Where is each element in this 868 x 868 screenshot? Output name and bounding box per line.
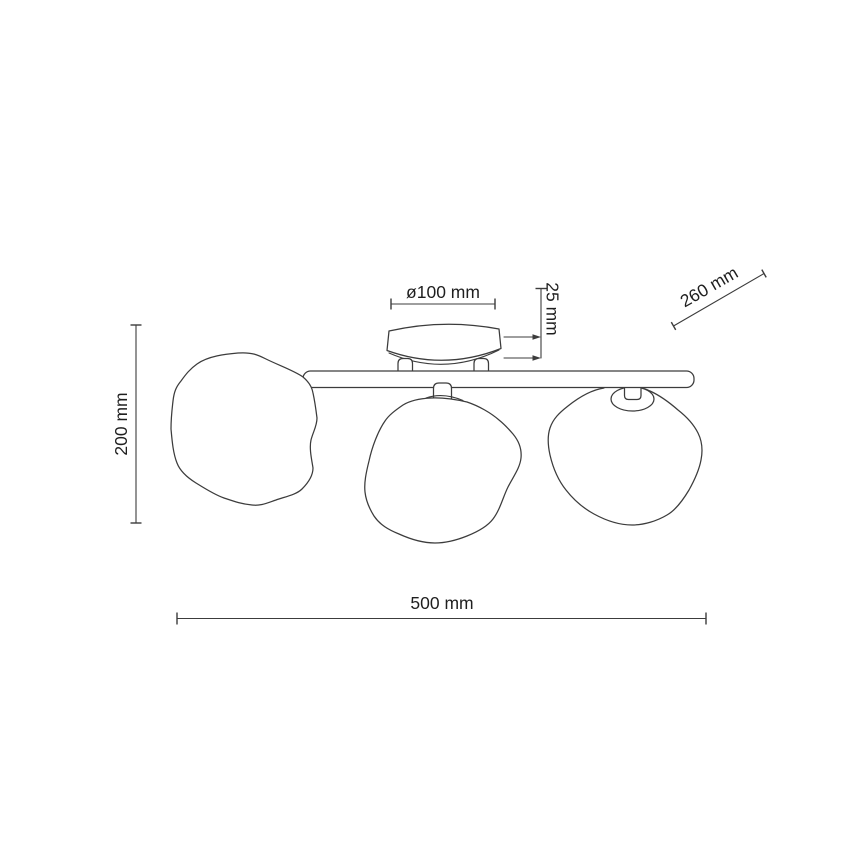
dimension-label-canopy-diameter: ø100 mm [406, 282, 480, 302]
dimension-end-tick [671, 322, 675, 330]
arrowhead-icon [533, 334, 542, 340]
ceiling-canopy [387, 324, 501, 372]
arrowhead-icon [533, 355, 542, 361]
canopy-body [387, 324, 501, 360]
dimension-canopy-height: 25 mm [504, 282, 563, 361]
dimension-label-total-height: 200 mm [111, 392, 131, 455]
dimension-canopy-diameter: ø100 mm [391, 282, 495, 310]
shade-left-glass [171, 353, 317, 505]
dimension-label-canopy-height: 25 mm [543, 282, 563, 335]
mounting-bar [303, 371, 694, 388]
canopy-foot-right [474, 359, 489, 373]
shade-middle [365, 383, 521, 543]
dimension-shade-width: 260 mm [671, 262, 766, 330]
shade-middle-glass [365, 398, 521, 543]
technical-drawing-canvas: 200 mm 500 mm 260 mm ø100 mm 25 mm [0, 0, 868, 868]
dimension-label-shade-width: 260 mm [677, 262, 742, 311]
canopy-foot-left [398, 359, 413, 373]
dimension-total-width: 500 mm [177, 593, 706, 625]
dimension-label-total-width: 500 mm [410, 593, 473, 613]
ceiling-lamp-dimension-drawing: 200 mm 500 mm 260 mm ø100 mm 25 mm [0, 0, 868, 868]
dimension-end-tick [762, 270, 766, 278]
shade-right [548, 378, 702, 525]
dimension-total-height: 200 mm [111, 325, 142, 523]
